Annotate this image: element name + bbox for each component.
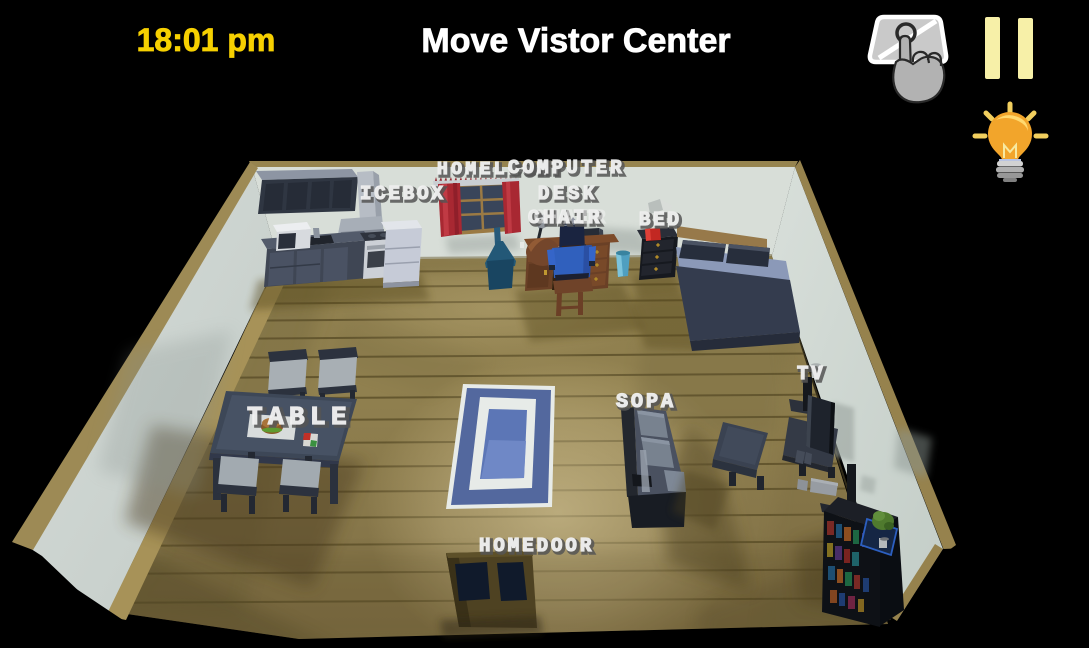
svg-text:CHAIR: CHAIR — [534, 207, 609, 229]
svg-text:Move Vistor Center: Move Vistor Center — [421, 22, 730, 60]
svg-text:HOMEDOOR: HOMEDOOR — [479, 535, 594, 557]
svg-text:ICEBOX: ICEBOX — [360, 183, 446, 205]
svg-text:18:01 pm: 18:01 pm — [137, 22, 276, 58]
svg-text:TV: TV — [797, 363, 825, 385]
svg-text:COMPUTER: COMPUTER — [508, 157, 625, 179]
svg-text:DESK: DESK — [538, 183, 598, 205]
svg-text:TABLE: TABLE — [247, 402, 352, 432]
svg-text:BED: BED — [639, 209, 682, 231]
svg-text:SOPA: SOPA — [616, 391, 676, 414]
